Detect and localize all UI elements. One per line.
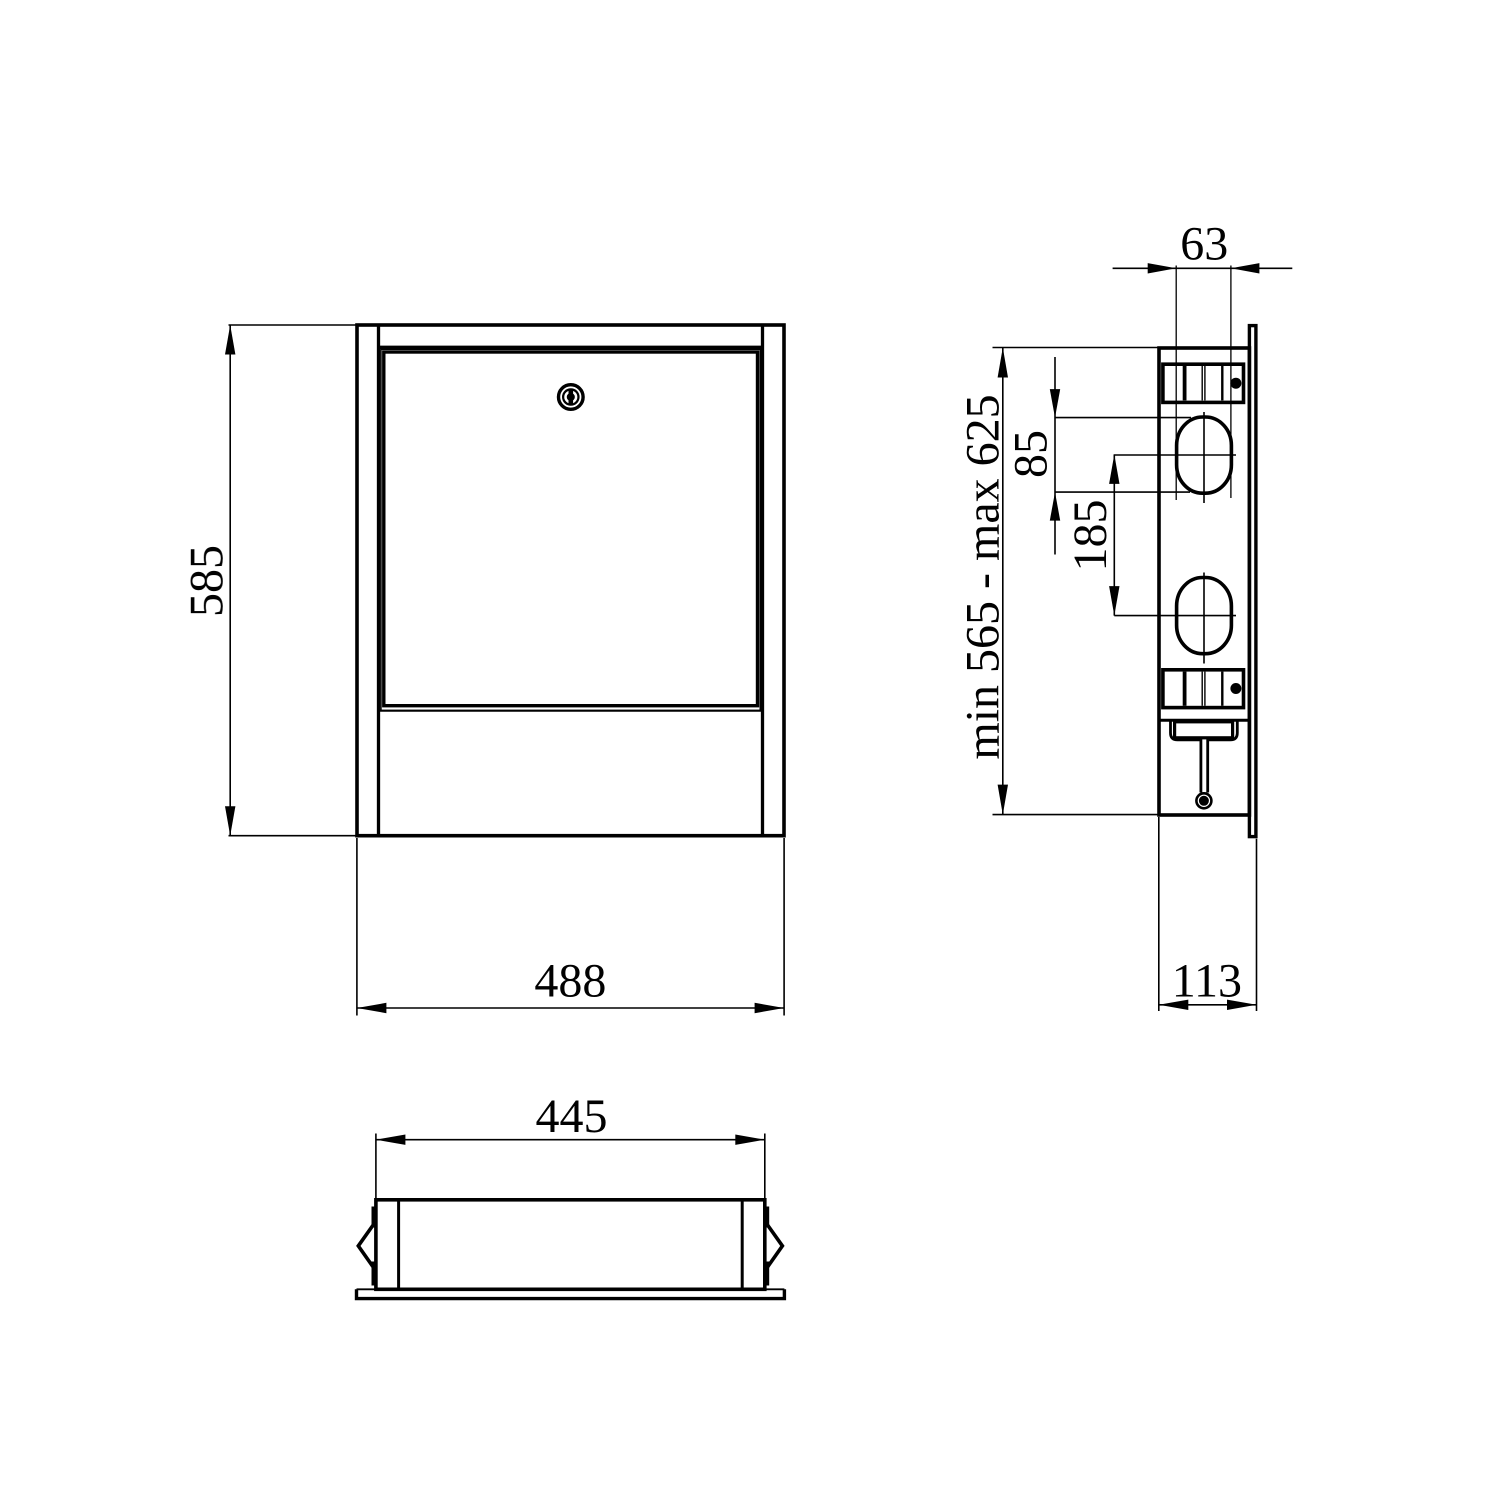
svg-text:85: 85 [1005,430,1058,478]
svg-text:63: 63 [1180,218,1228,271]
svg-text:185: 185 [1064,500,1117,572]
svg-text:585: 585 [180,545,233,617]
svg-text:min 565 - max 625: min 565 - max 625 [957,394,1010,759]
svg-text:113: 113 [1172,954,1242,1007]
svg-text:488: 488 [534,955,606,1008]
svg-text:445: 445 [536,1090,608,1143]
